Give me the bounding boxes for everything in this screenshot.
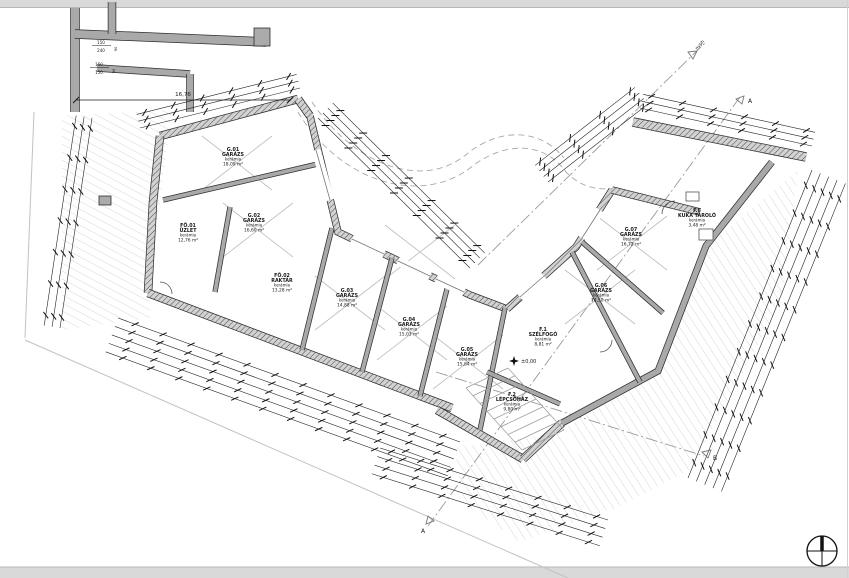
- plan-page: 16,76 150 240 90 150 150 90 A A B nyph ±…: [0, 0, 849, 578]
- room-label-line: 15,03 m²: [399, 331, 419, 337]
- room-label-line: kerámia: [504, 402, 521, 407]
- window1-top: 150: [97, 40, 105, 45]
- room-label-line: kerámia: [180, 233, 197, 238]
- room-label-line: 8,81 m²: [534, 341, 551, 347]
- window1-bottom: 240: [97, 48, 105, 53]
- pillar: [99, 196, 111, 205]
- floor-plan-canvas: 16,76 150 240 90 150 150 90 A A B nyph ±…: [0, 0, 849, 578]
- room-label-line: 12,76 m²: [178, 237, 198, 243]
- room-label-line: 15,84 m²: [457, 361, 477, 367]
- window2-top: 150: [95, 62, 103, 67]
- dim-total-label: 16,76: [175, 92, 191, 98]
- room-label-line: 14,88 m²: [337, 302, 357, 308]
- level-mark-label: ±0,00: [521, 359, 536, 365]
- window2-bottom: 150: [95, 70, 103, 75]
- room-label-line: kerámia: [535, 337, 552, 342]
- room-label-line: kerámia: [689, 218, 706, 223]
- room-label-line: FÖ.01: [180, 222, 196, 229]
- room-label: FÖ.02RAKTÁRkerámia13,28 m²: [271, 272, 293, 293]
- north-arrow-icon: [807, 536, 837, 566]
- room-label-line: 18,09 m²: [223, 161, 243, 167]
- room-label-line: 14,50 m²: [591, 297, 611, 303]
- room-label-line: kerámia: [225, 157, 242, 162]
- room-label-line: FÖ.02: [274, 272, 290, 279]
- sill1: 90: [113, 46, 118, 51]
- room-label-line: kerámia: [401, 327, 418, 332]
- room-label-line: kerámia: [623, 237, 640, 242]
- room-label-line: 16,60 m²: [244, 227, 264, 233]
- room-label-line: 3,48 m²: [688, 222, 705, 228]
- room-label-line: 13,28 m²: [272, 287, 292, 293]
- room-label: FÖ.01ÜZLETkerámia12,76 m²: [178, 222, 198, 243]
- sill2: 90: [111, 68, 116, 73]
- room-label-line: 16,72 m²: [621, 241, 641, 247]
- room-label-line: kerámia: [459, 357, 476, 362]
- room-label-line: kerámia: [593, 293, 610, 298]
- wall-end-block: [254, 28, 270, 46]
- room-label-line: kerámia: [274, 283, 291, 288]
- room-label-line: kerámia: [246, 223, 263, 228]
- room-label-line: kerámia: [339, 298, 356, 303]
- page-band-top: [0, 0, 849, 7]
- page-band-bottom: [0, 567, 849, 578]
- room-label-line: 9,80 m²: [503, 406, 520, 412]
- section-b-label: B: [713, 455, 717, 462]
